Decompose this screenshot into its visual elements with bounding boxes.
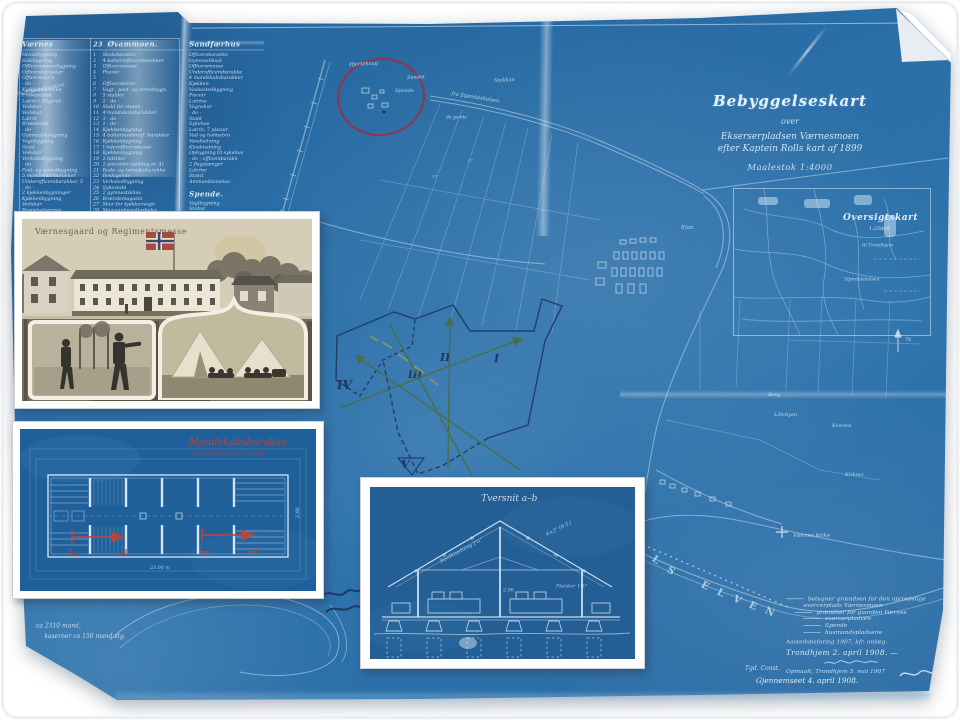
signature-squiggle [898,666,948,682]
main-building [70,270,224,313]
postcard-caption: Værnesgaard og Regimentsmesse [35,227,187,236]
postcard-art [22,219,312,401]
map-label: Lillebyen [774,412,797,418]
svg-text:V: V [401,458,411,471]
floorplan-dimension: 23.00 m [150,565,170,570]
tents-photo [160,300,306,398]
church-icon [776,526,788,538]
legend-line-sample [803,619,820,620]
floorplan-dimension: 2.96 [295,507,300,518]
map-label: Værnes kirke [793,532,830,539]
map-label: Spende [395,88,414,94]
soldiers-photo [30,321,154,398]
map-label: Sandet [407,74,425,80]
map-legend: betegner grændsen for den oprindeligeexe… [786,596,960,675]
map-source-line: efter Kaptein Rolls kart af 1899 [700,144,880,154]
legend-surveyed: Opmaalt, Trondhjem 5. mai 1907 [786,668,960,675]
sheet-reflection [115,693,930,707]
legend-table-2: 23Øvammoen.1Skolebarakke24 batterioffice… [93,40,183,177]
svg-text:IV: IV [336,378,354,392]
right-pavilion [231,275,312,313]
map-title-block: Bebyggelseskart over Ekserserpladsen Vær… [700,92,880,173]
legend-lines: betegner grændsen for den oprindeligeexe… [786,596,960,636]
svg-text:I: I [493,352,500,365]
capacity-notes: ca 2310 mand, kaserner ca 150 mand stg. [36,621,126,641]
legend-note: Aastedsbefaring 1907, kfr. anlæg. [786,639,960,646]
overview-title: Oversigtskart [843,213,918,223]
floorplan-subtitle: for 2 peletoner eller 72 mand [192,450,266,456]
table-header: Værnes [22,40,94,50]
legend-line: grændser for gaarden Værnes [786,609,960,616]
inset-postcard-photo: Værnesgaard og Regimentsmesse [14,211,320,409]
legend-line-sample [795,612,812,613]
paper-stain [459,637,477,649]
capacity-note-line: kaserner ca 150 mand stg. [44,631,125,641]
inset-floorplan-blueprint: Mandskabsbarakke for 2 peletoner eller 7… [12,421,324,599]
map-label: 22 [468,158,473,163]
legend-line-sample [803,632,820,633]
inset-cross-section-blueprint: Tversnit a–b 4×3" (B.T.) Bordklædning 1¼… [360,477,645,669]
map-label: Eian [681,224,694,231]
legend-line-sample [786,598,803,599]
section-title: Tversnit a–b [481,494,537,504]
floorplan-picture: Mandskabsbarakke for 2 peletoner eller 7… [20,429,316,591]
clerk-note: Tgd. Const. [745,665,780,672]
legend-line-sample [803,625,820,626]
map-scale: Maalestok 1:4000 [700,163,880,173]
map-label: Kirkmo [845,472,864,478]
legend-line: exercerpladsen [786,616,960,623]
signature-squiggle [823,658,879,667]
legend-table-1: VærnesHovedbygningSidebygningOfficersmes… [22,40,94,177]
capacity-note-line: ca 2310 mand, [36,621,126,631]
table-header: Sandfærhus [189,40,264,50]
overview-linework [734,189,930,335]
overview-scale: 1:25000 [869,226,890,232]
map-title: Bebyggelseskart [700,92,880,110]
map-label: 23 [432,174,437,179]
table-row: Ammunitionshus [189,179,264,185]
overview-label: til Trondhjem [862,243,893,248]
map-label: 7b [905,337,911,343]
table-subheader: Spende. [189,190,264,198]
legend-place-date: Trondhjem 2. april 1908. — [786,648,960,657]
section-art [370,487,635,659]
map-subtitle: Ekserserpladsen Værnesmoen [700,132,880,142]
legend-line: husmandspladsene [786,629,960,636]
slide-canvas: I II III IV V [0,0,960,720]
map-label: Kvitved [832,423,851,429]
ink-signature-scribble [322,590,363,612]
camp-buildings [362,88,731,506]
reviewed-note: Gjennemseet 4. april 1908. [756,676,858,685]
person-silhouette [125,304,128,314]
red-circle-annotation [333,53,429,140]
section-annotation: Planker 1½" [556,583,587,589]
folded-corner [893,4,958,70]
floorplan-title: Mandskabsbarakke [189,437,288,448]
map-title-over: over [700,117,880,126]
map-label: Stokkan [494,77,515,84]
table-header: 23Øvammoen. [93,40,183,50]
overview-inset-map: Oversigtskart 1:25000 til Trondhjem Stjø… [733,188,931,336]
overview-label: Stjørdalshalsen [844,277,879,282]
ink-dot [382,110,385,113]
yellow-pencil-marks [370,336,438,385]
legend-table-3: SandfærhusOfficersbarakkeGymnastiksalOff… [189,40,264,45]
postcard-picture: Værnesgaard og Regimentsmesse [22,219,312,401]
section-picture: Tversnit a–b 4×3" (B.T.) Bordklædning 1¼… [370,487,635,659]
section-annotation: 2.96 [503,587,514,593]
map-label: Berg [768,392,780,398]
map-label: de gamle [446,115,467,120]
